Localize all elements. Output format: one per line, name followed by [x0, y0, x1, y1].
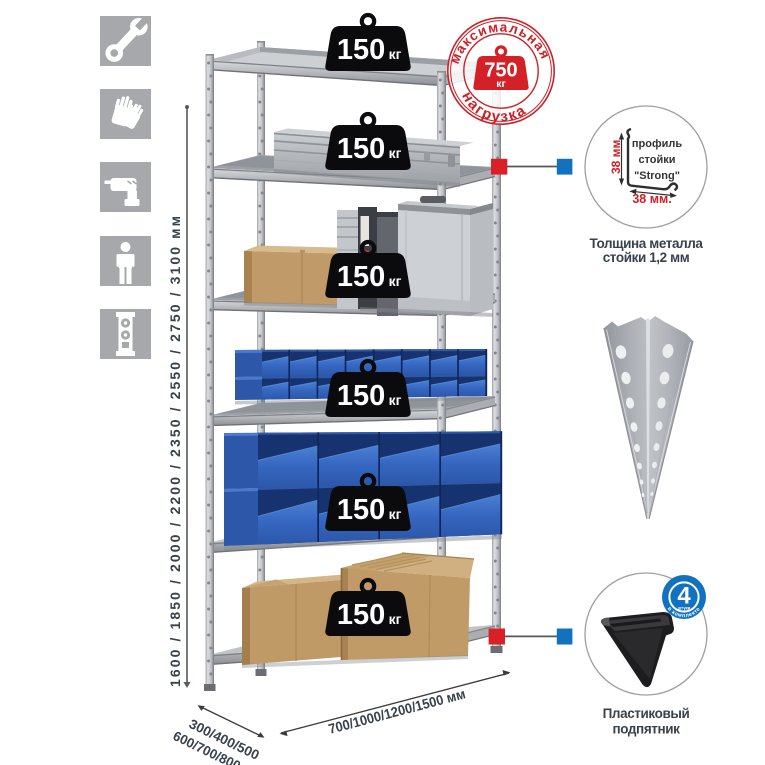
- svg-text:700/1000/1200/1500 мм: 700/1000/1200/1500 мм: [327, 685, 467, 736]
- svg-text:Пластиковый: Пластиковый: [603, 706, 690, 721]
- svg-text:кг: кг: [389, 611, 402, 627]
- svg-text:150: 150: [337, 599, 385, 631]
- svg-text:стойки 1,2 мм: стойки 1,2 мм: [603, 250, 690, 265]
- svg-text:штуки: штуки: [678, 606, 691, 611]
- svg-text:150: 150: [337, 380, 385, 412]
- svg-text:подпятник: подпятник: [612, 722, 680, 737]
- svg-text:профиль: профиль: [632, 138, 682, 150]
- svg-text:150: 150: [337, 133, 385, 165]
- svg-text:150: 150: [337, 494, 385, 526]
- svg-text:кг: кг: [496, 78, 506, 90]
- svg-text:38 мм.: 38 мм.: [632, 192, 671, 206]
- svg-text:150: 150: [337, 261, 385, 293]
- svg-text:кг: кг: [389, 46, 402, 62]
- svg-text:кг: кг: [389, 145, 402, 161]
- svg-text:38 мм: 38 мм: [609, 139, 623, 174]
- svg-text:150: 150: [337, 34, 385, 66]
- svg-text:1600 / 1850 / 2000 / 2200 / 23: 1600 / 1850 / 2000 / 2200 / 2350 / 2550 …: [167, 214, 183, 687]
- svg-text:кг: кг: [389, 392, 402, 408]
- svg-text:кг: кг: [389, 506, 402, 522]
- svg-text:Толщина металла: Толщина металла: [589, 236, 703, 251]
- svg-text:стойки: стойки: [638, 154, 675, 166]
- svg-text:кг: кг: [389, 273, 402, 289]
- svg-text:"Strong": "Strong": [634, 170, 680, 182]
